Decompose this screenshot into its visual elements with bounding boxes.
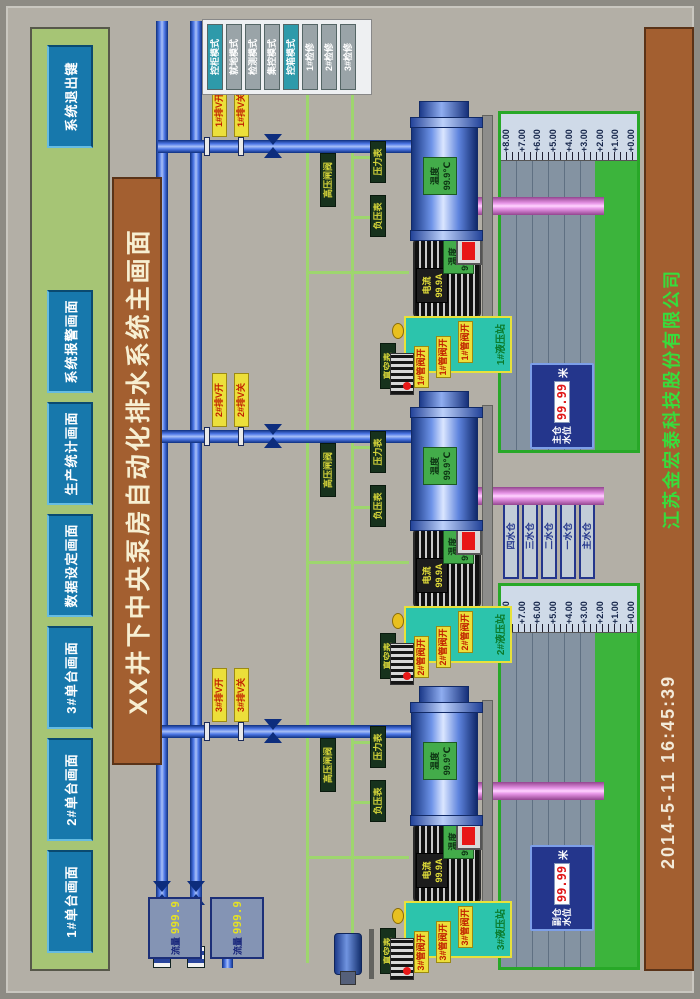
- pressure-tag: 压力表: [370, 431, 386, 473]
- suction-pipe: [476, 487, 604, 505]
- mode-button[interactable]: 2#检修: [321, 24, 337, 90]
- toolbar-button[interactable]: 3#单台画面: [47, 626, 93, 729]
- pipe-flange: [238, 722, 244, 741]
- toolbar-button[interactable]: 2#单台画面: [47, 738, 93, 841]
- pipe-valve-tag: 3#管阀开: [414, 931, 429, 973]
- hmi-screen: 流量 999.9 流量 999.9 +8.00+7.00+6.00+5.00+4…: [0, 0, 700, 999]
- pipe-valve-tag: 1#管阀开: [436, 336, 451, 378]
- datetime-display: 2014-5-11 16:45:39: [658, 675, 679, 869]
- pipe-valve-tag: 1#管阀开: [414, 346, 429, 388]
- discharge-valve-icon: [264, 719, 282, 743]
- hp-valve-tag: 高压闸阀: [320, 443, 336, 497]
- mode-button[interactable]: 就地模式: [226, 24, 242, 90]
- hydraulic-station-title: 3#液压站: [492, 903, 507, 956]
- signal-drop: [309, 271, 409, 274]
- mode-button[interactable]: 控箱模式: [283, 24, 299, 90]
- pipe-flange: [238, 137, 244, 156]
- hydraulic-pump-device: [390, 643, 414, 685]
- pump-flange-ring: [410, 407, 483, 418]
- discharge-valve-icon: [264, 424, 282, 448]
- pump-temp-readout: 温度99.9℃: [423, 157, 457, 195]
- power-dot: [403, 967, 411, 975]
- toolbar-button[interactable]: 系统退出键: [47, 45, 93, 148]
- valve-close-tag: 3#排V关: [234, 668, 249, 722]
- neg-pressure-tag: 负压表: [370, 485, 386, 527]
- pump-base: [482, 700, 493, 912]
- pump-end-cap: [419, 101, 469, 118]
- mode-button[interactable]: 3#检修: [340, 24, 356, 90]
- pump-end-cap: [419, 686, 469, 703]
- pipe-flange: [204, 137, 210, 156]
- pump-temp-readout: 温度99.9℃: [423, 447, 457, 485]
- pump-flange-ring: [410, 230, 483, 241]
- discharge-valve-icon: [264, 134, 282, 158]
- pump-flange-ring: [410, 702, 483, 713]
- suction-pipe: [476, 782, 604, 800]
- toolbar-button[interactable]: 1#单台画面: [47, 850, 93, 953]
- signal-drop: [309, 561, 409, 564]
- hp-valve-tag: 高压闸阀: [320, 153, 336, 207]
- hydraulic-pump-device: [390, 938, 414, 980]
- suction-pipe: [476, 197, 604, 215]
- hp-valve-tag: 高压闸阀: [320, 738, 336, 792]
- pump-base: [482, 405, 493, 617]
- pump-flange-ring: [410, 117, 483, 128]
- power-dot: [403, 672, 411, 680]
- mode-button[interactable]: 集控模式: [264, 24, 280, 90]
- pump-end-cap: [419, 391, 469, 408]
- gauge-fitting-icon: [392, 908, 404, 924]
- valve-open-tag: 2#排V开: [212, 373, 227, 427]
- pipe-valve-tag: 3#管阀开: [458, 906, 473, 948]
- company-name: 江苏金宏泰科技股份有限公司: [658, 269, 684, 529]
- title-bar: XX井下中央泵房自动化排水系统主画面: [112, 177, 162, 765]
- pipe-valve-tag: 3#管阀开: [436, 921, 451, 963]
- mode-button[interactable]: 控柜模式: [207, 24, 223, 90]
- power-dot: [403, 382, 411, 390]
- neg-pressure-tag: 负压表: [370, 195, 386, 237]
- mode-button[interactable]: 1#检修: [302, 24, 318, 90]
- hydraulic-station-title: 1#液压站: [492, 318, 507, 371]
- valve-close-tag: 2#排V关: [234, 373, 249, 427]
- pump-flange-ring: [410, 520, 483, 531]
- hydraulic-pump-device: [390, 353, 414, 395]
- page-title: XX井下中央泵房自动化排水系统主画面: [119, 227, 155, 714]
- pipe-flange: [204, 722, 210, 741]
- aux-pump-fitting: [340, 971, 356, 985]
- toolbar-button[interactable]: 系统报警画面: [47, 290, 93, 393]
- pump-temp-readout: 温度99.9℃: [423, 742, 457, 780]
- pipe-valve-tag: 2#管阀开: [458, 611, 473, 653]
- toolbar-button[interactable]: 数据设定画面: [47, 514, 93, 617]
- pump-unit: 1#排V开 1#排V关 高压闸阀 负压表 压力表 真空表 电流99.9A 温度9…: [6, 83, 700, 373]
- toolbar: 1#单台画面2#单台画面3#单台画面数据设定画面生产统计画面系统报警画面系统退出…: [30, 27, 110, 971]
- pump-unit: 2#排V开 2#排V关 高压闸阀 负压表 压力表 真空表 电流99.9A 温度9…: [6, 373, 700, 663]
- pipe-flange: [204, 427, 210, 446]
- hydraulic-station-title: 2#液压站: [492, 608, 507, 661]
- pump-unit: 3#排V开 3#排V关 高压闸阀 负压表 压力表 真空表 电流99.9A 温度9…: [6, 668, 700, 958]
- mode-button-panel: 控柜模式 就地模式 检测模式 集控模式 控箱模式 1#检修 2#检修 3#检修: [202, 19, 372, 95]
- pump-base: [482, 115, 493, 327]
- pressure-tag: 压力表: [370, 726, 386, 768]
- gauge-fitting-icon: [392, 613, 404, 629]
- pipe-valve-tag: 2#管阀开: [436, 626, 451, 668]
- footer-bar: 2014-5-11 16:45:39 江苏金宏泰科技股份有限公司: [644, 27, 694, 971]
- rotated-viewport: 流量 999.9 流量 999.9 +8.00+7.00+6.00+5.00+4…: [0, 0, 700, 999]
- pump-flange-ring: [410, 815, 483, 826]
- gauge-fitting-icon: [392, 323, 404, 339]
- valve-open-tag: 3#排V开: [212, 668, 227, 722]
- neg-pressure-tag: 负压表: [370, 780, 386, 822]
- pipe-valve-tag: 2#管阀开: [414, 636, 429, 678]
- toolbar-button[interactable]: 生产统计画面: [47, 402, 93, 505]
- signal-drop: [309, 856, 409, 859]
- pipe-flange: [238, 427, 244, 446]
- pressure-tag: 压力表: [370, 141, 386, 183]
- mode-button[interactable]: 检测模式: [245, 24, 261, 90]
- pipe-valve-tag: 1#管阀开: [458, 321, 473, 363]
